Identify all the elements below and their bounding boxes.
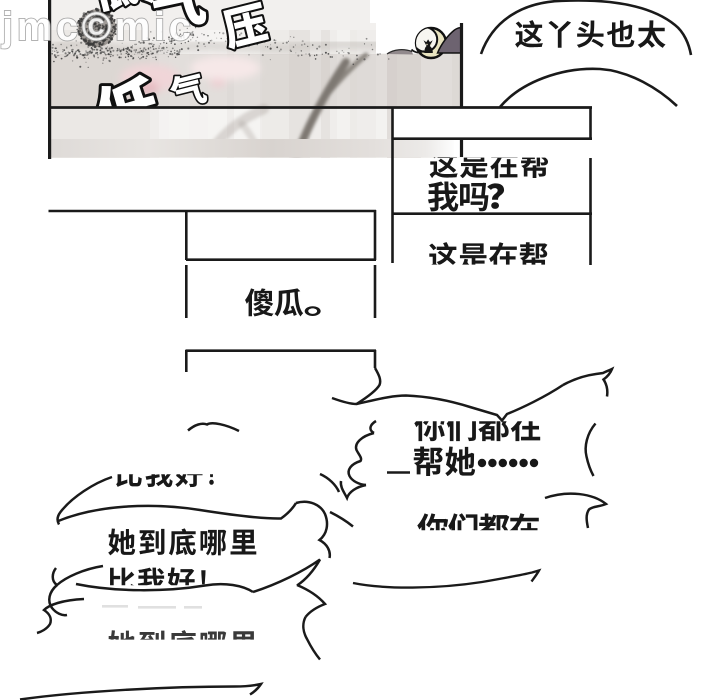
svg-text:jmc©mic: jmc©mic bbox=[1, 5, 195, 49]
